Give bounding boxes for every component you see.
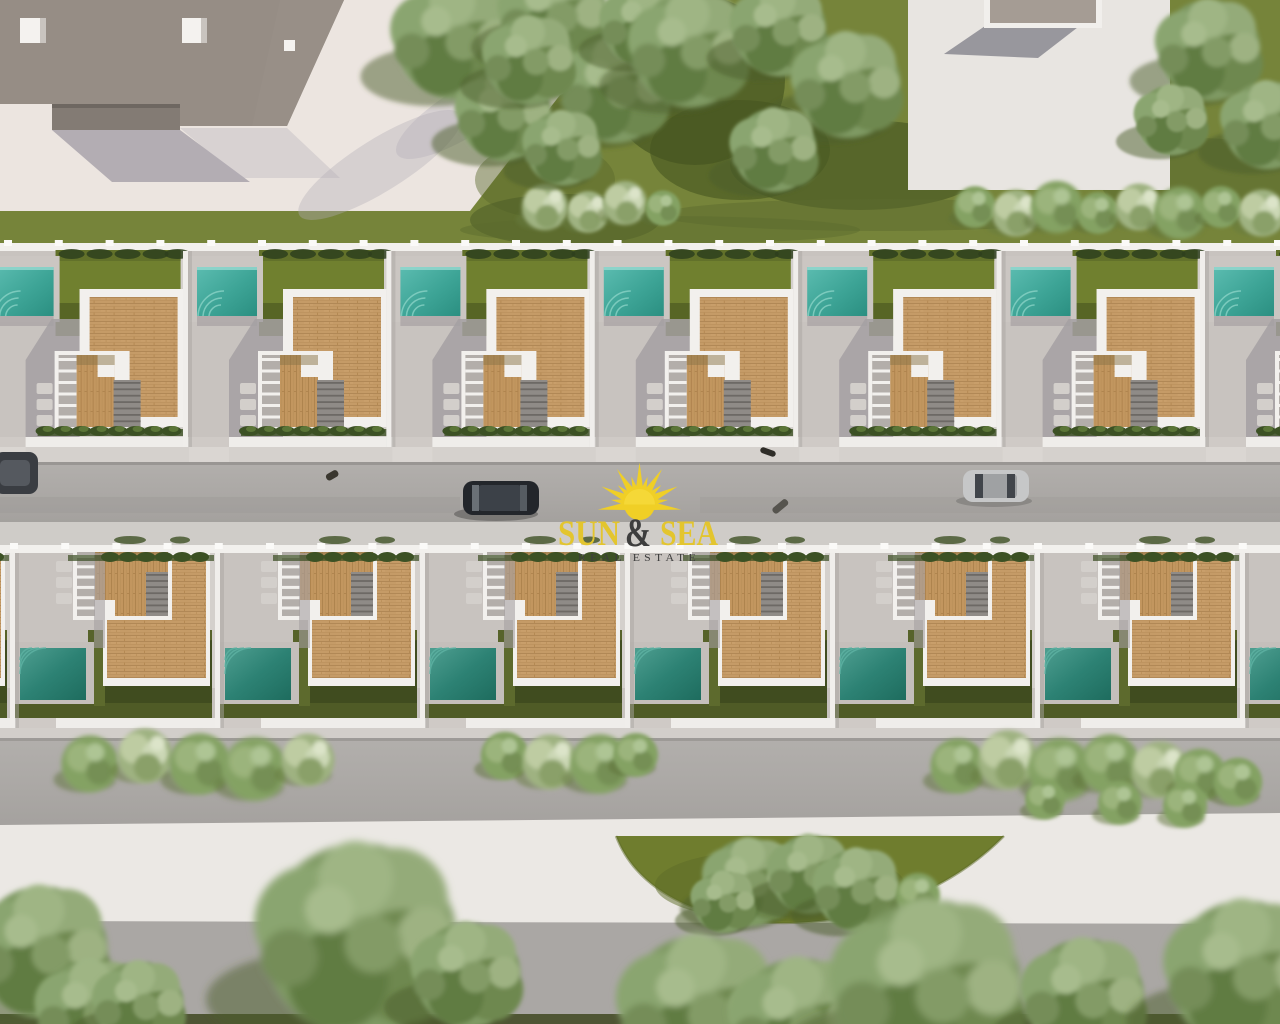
svg-text:SUN: SUN <box>558 513 620 553</box>
svg-text:&: & <box>625 510 651 555</box>
svg-text:SEA: SEA <box>660 513 718 553</box>
svg-text:REAL ESTATE: REAL ESTATE <box>578 552 700 564</box>
